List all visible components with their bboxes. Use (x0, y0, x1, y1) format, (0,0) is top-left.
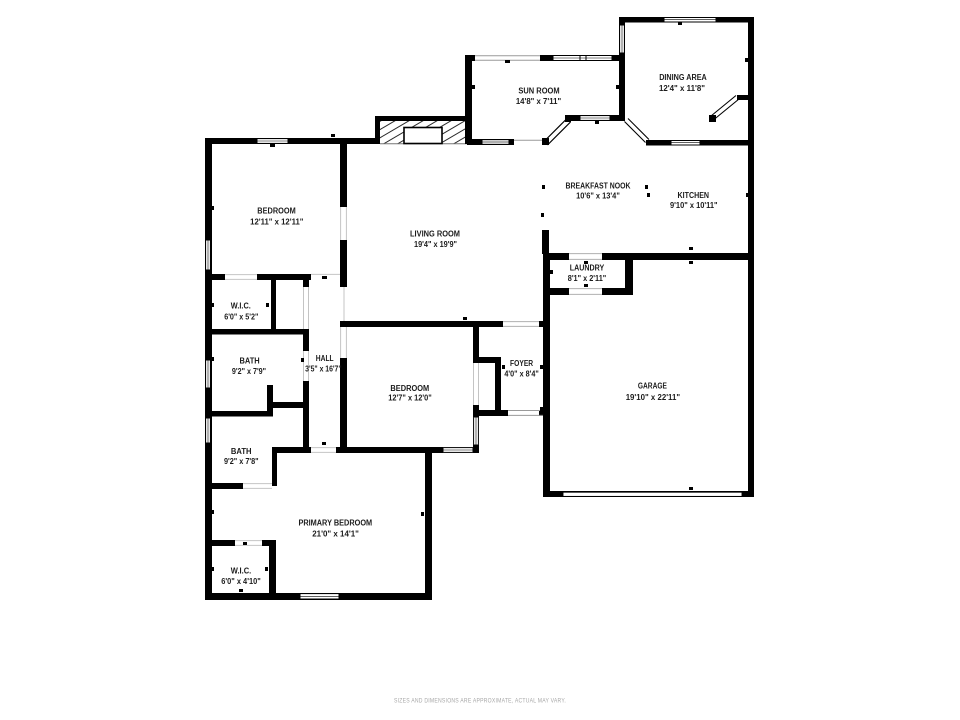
svg-text:KITCHEN: KITCHEN (678, 190, 710, 200)
svg-text:GARAGE: GARAGE (638, 381, 667, 391)
svg-text:12'11" x 12'11": 12'11" x 12'11" (250, 217, 303, 227)
svg-text:BATH: BATH (240, 356, 260, 366)
svg-text:4'0" x 8'4": 4'0" x 8'4" (504, 368, 538, 378)
svg-text:3'5" x 16'7": 3'5" x 16'7" (305, 363, 342, 373)
svg-text:W.I.C.: W.I.C. (231, 565, 252, 575)
svg-text:9'2" x 7'8": 9'2" x 7'8" (224, 456, 259, 466)
svg-text:FOYER: FOYER (510, 358, 534, 368)
svg-text:LAUNDRY: LAUNDRY (570, 262, 605, 272)
svg-text:6'0" x 5'2": 6'0" x 5'2" (224, 312, 258, 322)
svg-text:SUN ROOM: SUN ROOM (518, 86, 559, 96)
svg-text:21'0" x 14'1": 21'0" x 14'1" (312, 528, 359, 538)
svg-text:PRIMARY BEDROOM: PRIMARY BEDROOM (298, 517, 372, 527)
svg-text:LIVING ROOM: LIVING ROOM (410, 229, 460, 239)
svg-text:BREAKFAST NOOK: BREAKFAST NOOK (566, 181, 632, 191)
svg-text:8'1" x 2'11": 8'1" x 2'11" (568, 273, 607, 283)
svg-text:DINING AREA: DINING AREA (659, 72, 707, 82)
svg-text:6'0" x 4'10": 6'0" x 4'10" (221, 576, 261, 586)
svg-text:19'10" x 22'11": 19'10" x 22'11" (626, 392, 680, 402)
svg-text:12'4" x 11'8": 12'4" x 11'8" (659, 83, 705, 93)
svg-text:14'8" x 7'11": 14'8" x 7'11" (516, 96, 561, 106)
svg-text:W.I.C.: W.I.C. (231, 300, 251, 310)
svg-text:SIZES AND DIMENSIONS ARE APPRO: SIZES AND DIMENSIONS ARE APPROXIMATE, AC… (394, 698, 566, 705)
svg-text:10'6" x 13'4": 10'6" x 13'4" (576, 190, 620, 200)
svg-text:BEDROOM: BEDROOM (257, 206, 295, 216)
svg-text:9'10" x 10'11": 9'10" x 10'11" (670, 200, 718, 210)
svg-text:HALL: HALL (316, 353, 334, 363)
svg-text:12'7" x 12'0": 12'7" x 12'0" (388, 393, 431, 403)
svg-text:BATH: BATH (231, 446, 252, 456)
svg-text:BEDROOM: BEDROOM (390, 383, 429, 393)
svg-text:19'4" x 19'9": 19'4" x 19'9" (414, 239, 457, 249)
svg-text:9'2" x 7'9": 9'2" x 7'9" (232, 366, 266, 376)
